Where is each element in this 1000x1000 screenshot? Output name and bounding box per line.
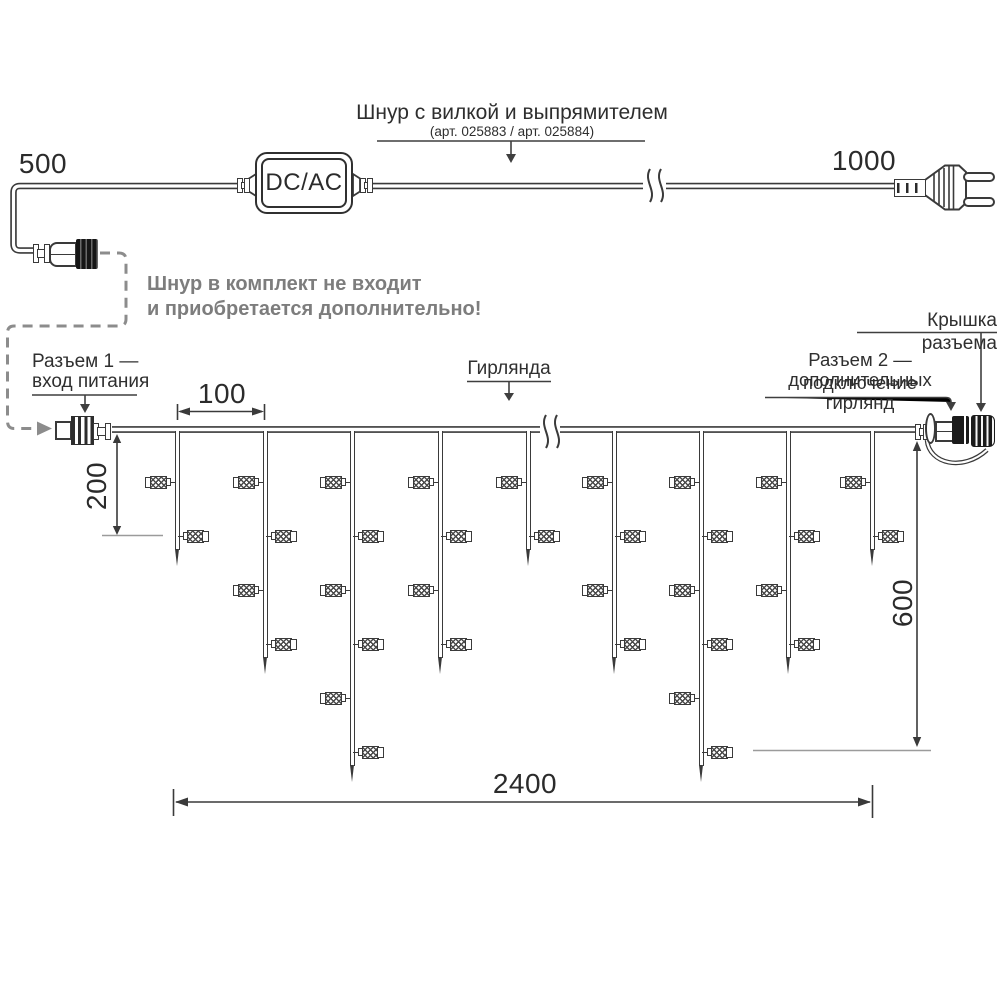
lamp-icon (313, 583, 351, 598)
lamp-cap (465, 639, 472, 650)
lamp-body (674, 692, 691, 705)
lamp-icon (789, 637, 827, 652)
lamp-icon (662, 691, 700, 706)
lamp-neck (878, 532, 883, 540)
connector2-black-block (952, 416, 969, 444)
lamp-neck (620, 640, 625, 648)
cord-connector-joint (33, 244, 50, 263)
lamp-icon (489, 475, 527, 490)
cord-connector-midline (51, 254, 75, 255)
lamp-icon (749, 583, 787, 598)
lamp-cap (290, 531, 297, 542)
lamp-body (798, 638, 815, 651)
lamp-body (587, 476, 604, 489)
lamp-neck (620, 532, 625, 540)
lamp-icon (702, 745, 740, 760)
drop-tip (263, 657, 267, 674)
lamp-icon (789, 529, 827, 544)
lamp-icon (702, 637, 740, 652)
lamp-neck (794, 532, 799, 540)
lamp-neck (446, 640, 451, 648)
lamp-icon (266, 637, 304, 652)
lamp-icon (662, 475, 700, 490)
lamp-body (325, 476, 342, 489)
lamp-body (538, 530, 555, 543)
drop-strand (263, 431, 268, 658)
lamp-body (711, 530, 728, 543)
lamp-neck (777, 586, 782, 594)
lamp-body (587, 584, 604, 597)
lamp-body (501, 476, 518, 489)
dim-600-label: 600 (886, 571, 916, 635)
lamp-neck (690, 694, 695, 702)
lamp-neck (358, 532, 363, 540)
lamp-icon (749, 475, 787, 490)
lamp-body (275, 530, 292, 543)
lamp-body (674, 476, 691, 489)
lamp-cap (290, 639, 297, 650)
lamp-icon (575, 475, 613, 490)
lamp-neck (707, 640, 712, 648)
wire-break-icon (544, 415, 548, 448)
lamp-icon (575, 583, 613, 598)
lamp-cap (377, 747, 384, 758)
lamp-body (325, 584, 342, 597)
lamp-body (187, 530, 204, 543)
lamp-cap (553, 531, 560, 542)
dcac-right-joint (360, 178, 373, 193)
lamp-icon (353, 745, 391, 760)
dim-500-label: 500 (8, 147, 78, 181)
lamp-icon (226, 475, 264, 490)
lamp-cap (202, 531, 209, 542)
lamp-neck (603, 586, 608, 594)
cord-sublabel: (арт. 025883 / арт. 025884) (332, 124, 692, 140)
power-cable-left (14, 186, 239, 251)
lamp-icon (873, 529, 911, 544)
garland-label: Гирлянда (444, 357, 574, 380)
drop-strand (438, 431, 443, 658)
lamp-icon (833, 475, 871, 490)
lamp-body (711, 746, 728, 759)
lamp-neck (358, 748, 363, 756)
lamp-icon (313, 475, 351, 490)
lamp-body (325, 692, 342, 705)
lamp-body (362, 530, 379, 543)
lamp-body (845, 476, 862, 489)
lamp-icon (226, 583, 264, 598)
connector1-ribbed-nut (71, 416, 94, 445)
plug-cord-grip-ribs (897, 183, 924, 193)
lamp-body (761, 584, 778, 597)
dashed-path-arrowhead (37, 422, 52, 436)
lamp-body (413, 476, 430, 489)
lamp-neck (794, 640, 799, 648)
drop-tip (526, 549, 530, 566)
lamp-body (275, 638, 292, 651)
cable-break-icon (648, 169, 652, 202)
lamp-cap (726, 639, 733, 650)
lamp-neck (358, 640, 363, 648)
lamp-neck (707, 532, 712, 540)
lamp-cap (465, 531, 472, 542)
lamp-body (761, 476, 778, 489)
lamp-icon (662, 583, 700, 598)
lamp-body (624, 530, 641, 543)
drop-tip (612, 657, 616, 674)
lamp-body (362, 746, 379, 759)
drop-tip (699, 765, 703, 782)
lamp-neck (603, 478, 608, 486)
lamp-body (798, 530, 815, 543)
lamp-neck (341, 694, 346, 702)
lamp-icon (353, 637, 391, 652)
lamp-body (624, 638, 641, 651)
lamp-body (450, 638, 467, 651)
cord-label: Шнур с вилкой и выпрямителем (332, 100, 692, 126)
lamp-icon (266, 529, 304, 544)
dim-1000-label: 1000 (829, 144, 899, 178)
lamp-body (882, 530, 899, 543)
dcac-label: DC/AC (265, 169, 342, 197)
lamp-cap (813, 639, 820, 650)
lamp-neck (690, 478, 695, 486)
lamp-neck (429, 586, 434, 594)
plug-prong-bottom (963, 197, 995, 207)
drop-tip (175, 549, 179, 566)
lamp-icon (615, 529, 653, 544)
dcac-left-joint (237, 178, 250, 193)
lamp-neck (517, 478, 522, 486)
drop-tip (438, 657, 442, 674)
lamp-neck (166, 478, 171, 486)
connector2-label-line2: дополнительных гирлянд (760, 369, 960, 414)
lamp-icon (353, 529, 391, 544)
dim-100-label: 100 (180, 377, 264, 411)
garland-wiring-diagram: Шнур с вилкой и выпрямителем (арт. 02588… (0, 0, 1000, 1000)
lamp-cap (377, 639, 384, 650)
dim-2400-label: 2400 (465, 767, 585, 801)
lamp-neck (446, 532, 451, 540)
lamp-neck (777, 478, 782, 486)
connector2-body-midline (937, 431, 952, 432)
drop-tip (786, 657, 790, 674)
dcac-converter-label-panel: DC/AC (261, 158, 347, 208)
lamp-body (362, 638, 379, 651)
lamp-icon (702, 529, 740, 544)
plug-body (925, 166, 966, 210)
lamp-icon (401, 583, 439, 598)
drop-strand (612, 431, 617, 658)
lamp-body (238, 584, 255, 597)
lamp-body (413, 584, 430, 597)
cap-label: Крышка разъема (857, 309, 997, 355)
cord-connector-cap (76, 239, 98, 269)
lamp-icon (313, 691, 351, 706)
dim-200-label: 200 (80, 454, 110, 518)
plug-prong-top (963, 172, 995, 182)
lamp-neck (254, 478, 259, 486)
connector1-label-line2: вход питания (32, 370, 149, 393)
note-line1: Шнур в комплект не входит (147, 272, 422, 297)
lamp-neck (534, 532, 539, 540)
lamp-cap (377, 531, 384, 542)
lamp-body (238, 476, 255, 489)
note-line2: и приобретается дополнительно! (147, 297, 481, 322)
lamp-icon (441, 637, 479, 652)
lamp-icon (529, 529, 567, 544)
lamp-cap (897, 531, 904, 542)
cord-connector-body (49, 242, 77, 267)
lamp-neck (861, 478, 866, 486)
connector1-joint (93, 423, 111, 440)
lamp-neck (183, 532, 188, 540)
lamp-neck (271, 532, 276, 540)
lamp-icon (138, 475, 176, 490)
lamp-neck (429, 478, 434, 486)
lamp-icon (401, 475, 439, 490)
lamp-body (150, 476, 167, 489)
drop-tip (870, 549, 874, 566)
lamp-cap (726, 531, 733, 542)
lamp-cap (639, 531, 646, 542)
lamp-neck (341, 478, 346, 486)
lamp-body (711, 638, 728, 651)
lamp-neck (341, 586, 346, 594)
lamp-cap (726, 747, 733, 758)
lamp-neck (254, 586, 259, 594)
connector2-black-block-groove (964, 416, 966, 444)
lamp-icon (615, 637, 653, 652)
dashed-connection-path (8, 253, 127, 429)
lamp-icon (178, 529, 216, 544)
lamp-neck (707, 748, 712, 756)
drop-strand (786, 431, 791, 658)
lamp-neck (271, 640, 276, 648)
lamp-neck (690, 586, 695, 594)
connector-cap (971, 415, 995, 447)
lamp-icon (441, 529, 479, 544)
connector1-end-block (55, 421, 72, 440)
drop-tip (350, 765, 354, 782)
lamp-cap (813, 531, 820, 542)
lamp-body (450, 530, 467, 543)
lamp-cap (639, 639, 646, 650)
lamp-body (674, 584, 691, 597)
